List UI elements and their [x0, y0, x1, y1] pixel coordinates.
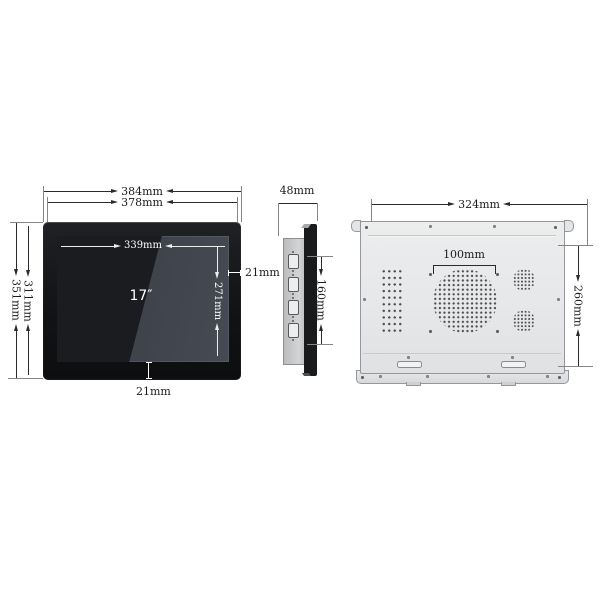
dim-rear-height: 260mm: [572, 245, 584, 366]
arrow-down-icon: [26, 270, 30, 277]
arrow-right-icon: [448, 202, 455, 206]
arrow-down-icon: [576, 275, 580, 282]
screw-icon: [487, 375, 490, 378]
mounting-ear: [564, 220, 574, 232]
vesa-hole-icon: [496, 330, 499, 333]
dim-depth-line: [278, 203, 317, 204]
arrow-up-icon: [26, 324, 30, 331]
arrow-up-icon: [319, 324, 323, 331]
bezel-bottom-tick: [148, 362, 149, 379]
extension-line: [237, 197, 238, 222]
arrow-right-icon: [111, 200, 118, 204]
dim-label: 384mm: [118, 186, 166, 197]
extension-line: [241, 186, 242, 222]
dim-label: 351mm: [11, 276, 22, 324]
screw-icon: [363, 298, 366, 301]
arrow-down-icon: [215, 272, 219, 279]
vga-port-icon: [288, 300, 299, 315]
arrow-up-icon: [576, 329, 580, 336]
screw-icon: [429, 225, 432, 228]
vesa-hole-icon: [496, 273, 499, 276]
vent-holes-icon: [380, 267, 402, 334]
screw-icon: [426, 375, 429, 378]
extension-line: [558, 245, 593, 246]
vesa-hole-icon: [429, 330, 432, 333]
dim-label: 311mm: [23, 277, 34, 325]
extension-line: [8, 378, 43, 379]
screw-icon: [511, 356, 514, 359]
screw-icon: [379, 375, 382, 378]
dim-label: 260mm: [573, 282, 584, 330]
arrow-down-icon: [319, 269, 323, 276]
speaker-grille-icon: [513, 310, 535, 332]
arrow-left-icon: [166, 200, 173, 204]
arrow-right-icon: [114, 244, 121, 248]
vga-port-icon: [288, 323, 299, 338]
vga-port-icon: [288, 254, 299, 269]
dim-front-outer-height: 351mm: [10, 222, 22, 378]
dim-vesa-line: [433, 265, 496, 266]
screw-icon: [493, 225, 496, 228]
rear-seam: [363, 353, 561, 354]
arrow-right-icon: [111, 189, 118, 193]
extension-line: [307, 344, 333, 345]
dim-rear-width: 324mm: [371, 198, 587, 210]
bezel-bottom-label: 21mm: [136, 386, 168, 397]
extension-line: [10, 222, 43, 223]
arrow-left-icon: [503, 202, 510, 206]
vent-holes-icon: [433, 269, 497, 333]
extension-line: [558, 366, 593, 367]
extension-line: [43, 186, 44, 222]
arrow-left-icon: [165, 244, 172, 248]
mounting-slot-icon: [397, 361, 422, 368]
vga-port-icon: [288, 277, 299, 292]
extension-line: [317, 203, 318, 221]
extension-line: [278, 203, 279, 236]
screen-size-label: 17″: [57, 288, 225, 304]
dim-display-width: 339mm: [61, 240, 225, 252]
dim-label: 324mm: [455, 199, 503, 210]
screw-icon: [554, 226, 557, 229]
vesa-label: 100mm: [434, 249, 494, 260]
arrow-up-icon: [14, 324, 18, 331]
extension-line: [371, 199, 372, 222]
speaker-grille-icon: [513, 269, 535, 291]
arrow-left-icon: [166, 189, 173, 193]
arrow-down-icon: [14, 269, 18, 276]
depth-label: 48mm: [277, 185, 317, 196]
screw-icon: [558, 376, 561, 379]
extension-line: [47, 197, 48, 222]
dim-port-section-height: 160mm: [315, 256, 327, 344]
rear-seam: [368, 235, 556, 236]
extension-line: [307, 256, 333, 257]
dim-label: 378mm: [118, 197, 166, 208]
mounting-slot-icon: [501, 361, 526, 368]
dim-front-frame-height: 311mm: [22, 226, 34, 375]
screw-icon: [361, 376, 364, 379]
extension-line: [587, 199, 588, 245]
vesa-tick: [433, 265, 434, 274]
bezel-right-label: 21mm: [245, 267, 280, 278]
screw-icon: [365, 226, 368, 229]
dim-label: 339mm: [121, 241, 165, 251]
vesa-hole-icon: [429, 273, 432, 276]
mounting-tab: [406, 382, 421, 386]
dim-label: 160mm: [316, 276, 327, 324]
dimension-diagram: 17″ 384mm 378mm 351mm 311mm 339mm 271mm …: [0, 0, 600, 600]
vesa-tick: [495, 265, 496, 274]
mounting-tab: [501, 382, 516, 386]
screw-icon: [557, 298, 560, 301]
arrow-up-icon: [215, 323, 219, 330]
screw-icon: [546, 375, 549, 378]
bezel-right-tick: [228, 272, 241, 273]
dim-front-frame-width: 378mm: [47, 196, 237, 208]
screw-icon: [407, 356, 410, 359]
